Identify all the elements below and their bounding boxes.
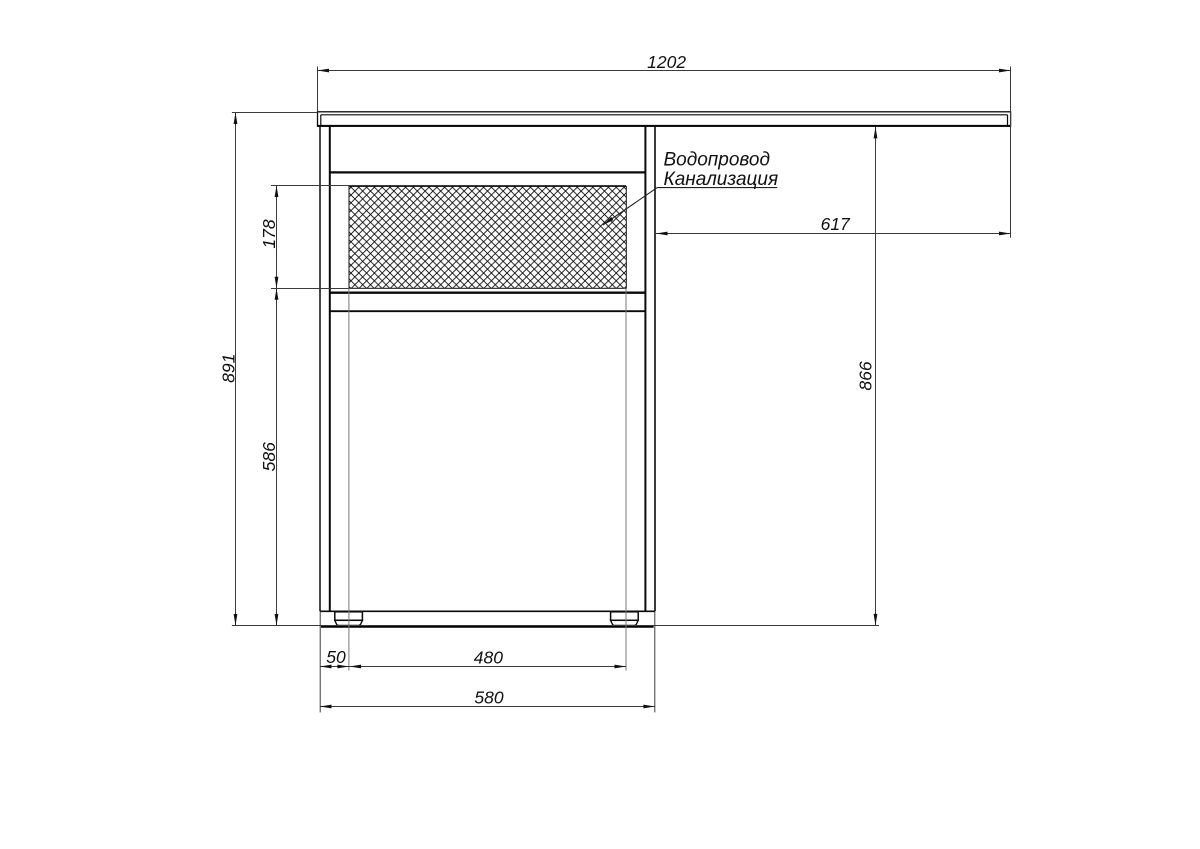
svg-text:580: 580 (474, 687, 503, 707)
svg-text:866: 866 (856, 361, 876, 390)
svg-text:178: 178 (259, 219, 279, 248)
svg-text:50: 50 (326, 647, 346, 667)
svg-text:Водопровод: Водопровод (664, 150, 770, 171)
svg-text:891: 891 (218, 354, 238, 383)
svg-text:586: 586 (259, 442, 279, 471)
svg-text:Канализация: Канализация (664, 169, 779, 190)
svg-text:617: 617 (821, 214, 851, 234)
svg-text:480: 480 (474, 647, 503, 667)
svg-text:1202: 1202 (647, 52, 686, 72)
